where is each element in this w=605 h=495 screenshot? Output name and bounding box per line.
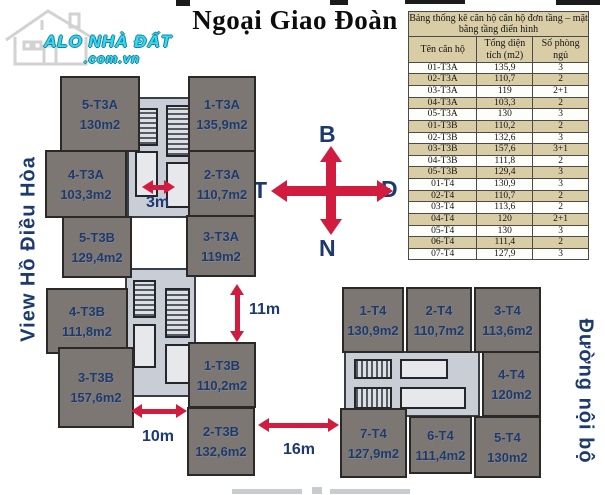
unit-area: 110,2m2	[197, 379, 248, 392]
logo: ALO NHÀ ĐẤT .com.vn	[0, 6, 165, 68]
bottom-cutoff-text-fragment	[330, 489, 410, 494]
table-cell: 119	[477, 86, 533, 98]
table-cell: 04-T3B	[409, 155, 477, 167]
unit-area: 111,8m2	[62, 325, 112, 338]
dimension-arrow-10m	[131, 404, 187, 418]
elevator	[400, 359, 448, 379]
unit-1-T3B: 1-T3B110,2m2	[188, 342, 256, 408]
unit-id: 6-T4	[427, 429, 454, 442]
table-row: 06-T4111,42	[409, 237, 589, 249]
elevator	[165, 344, 190, 384]
floorplan-canvas: Ngoại Giao Đoàn ALO NHÀ ĐẤT .com.vn View…	[0, 0, 605, 495]
table-cell: 03-T3B	[409, 144, 477, 156]
table-cell: 130	[477, 109, 533, 121]
unit-area: 103,3m2	[60, 188, 111, 201]
unit-area: 130m2	[487, 451, 527, 464]
unit-area: 132,6m2	[195, 445, 246, 458]
compass-arrow-south	[320, 219, 342, 235]
unit-5-T4: 5-T4130m2	[474, 416, 541, 478]
table-cell: 3+1	[533, 144, 589, 156]
table-cell: 2	[533, 190, 589, 202]
unit-id: 4-T3B	[69, 305, 105, 318]
table-cell: 3	[533, 109, 589, 121]
table-cell: 01-T3A	[409, 62, 477, 74]
unit-id: 2-T3B	[203, 425, 239, 438]
unit-id: 5-T4	[494, 431, 521, 444]
unit-area: 110,7m2	[197, 188, 248, 201]
unit-area: 119m2	[201, 250, 241, 263]
table-row: 05-T41303	[409, 225, 589, 237]
top-cutoff-text-fragment	[405, 0, 465, 4]
logo-domain: .com.vn	[84, 51, 140, 66]
table-row: 02-T4110,72	[409, 190, 589, 202]
stairwell	[354, 359, 392, 379]
stairwell	[354, 387, 392, 409]
table-cell: 3	[533, 167, 589, 179]
table-cell: 132,6	[477, 132, 533, 144]
unit-area: 113,6m2	[482, 324, 533, 337]
right-side-label: Đường nội bộ	[574, 318, 597, 463]
compass-arrow-west	[271, 180, 287, 202]
unit-7-T4: 7-T4127,9m2	[340, 408, 407, 478]
col-header-unit: Tên căn hộ	[409, 37, 477, 62]
table-cell: 05-T3B	[409, 167, 477, 179]
table-row: 05-T3A1303	[409, 109, 589, 121]
table-cell: 2	[533, 120, 589, 132]
table-row: 04-T41202+1	[409, 213, 589, 225]
unit-1-T3A: 1-T3A135,9m2	[188, 76, 256, 152]
table-row: 02-T3B132,63	[409, 132, 589, 144]
dimension-label-3m: 3m	[146, 194, 169, 212]
table-cell: 111,4	[477, 237, 533, 249]
dimension-label-11m: 11m	[249, 301, 280, 319]
table-cell: 04-T3A	[409, 97, 477, 109]
table-cell: 110,7	[477, 190, 533, 202]
elevator	[400, 387, 466, 409]
unit-id: 7-T4	[360, 427, 387, 440]
table-cell: 06-T4	[409, 237, 477, 249]
unit-3-T4: 3-T4113,6m2	[474, 287, 541, 353]
table-cell: 103,3	[477, 97, 533, 109]
unit-id: 3-T3A	[203, 230, 239, 243]
dimension-label-16m: 16m	[283, 441, 315, 459]
unit-id: 3-T3B	[78, 371, 114, 384]
unit-id: 3-T4	[494, 304, 521, 317]
table-title: Bảng thống kê căn hộ căn hộ đơn tầng – m…	[409, 12, 589, 37]
unit-id: 5-T3B	[79, 231, 115, 244]
table-row: 05-T3B129,43	[409, 167, 589, 179]
bottom-cutoff-text-fragment	[312, 487, 322, 494]
logo-text: ALO NHÀ ĐẤT	[44, 32, 172, 52]
table-cell: 05-T3A	[409, 109, 477, 121]
unit-id: 1-T3B	[204, 359, 240, 372]
unit-area: 157,6m2	[70, 391, 121, 404]
table-cell: 3	[533, 225, 589, 237]
unit-id: 4-T3A	[68, 168, 104, 181]
table-cell: 127,9	[477, 248, 533, 260]
table-row: 01-T3A135,93	[409, 62, 589, 74]
unit-5-T3B: 5-T3B129,4m2	[62, 216, 132, 278]
unit-id: 2-T4	[426, 304, 453, 317]
unit-5-T3A: 5-T3A130m2	[60, 76, 140, 152]
col-header-bedrooms: Số phòng ngủ	[533, 37, 589, 62]
compass-south-label: N	[319, 235, 336, 262]
table-row: 03-T3A1192+1	[409, 86, 589, 98]
table-cell: 3	[533, 248, 589, 260]
table-cell: 157,6	[477, 144, 533, 156]
left-side-label: View Hồ Điều Hòa	[18, 156, 41, 342]
table-cell: 2+1	[533, 213, 589, 225]
dimension-arrow-16m	[258, 418, 339, 432]
dimension-label-10m: 10m	[142, 428, 174, 446]
unit-area: 129,4m2	[71, 251, 122, 264]
table-cell: 111,8	[477, 155, 533, 167]
table-cell: 130,9	[477, 179, 533, 191]
table-cell: 2+1	[533, 86, 589, 98]
table-cell: 120	[477, 213, 533, 225]
table-cell: 113,6	[477, 202, 533, 214]
elevator	[133, 324, 156, 368]
table-cell: 02-T3A	[409, 74, 477, 86]
unit-area: 127,9m2	[348, 447, 399, 460]
table-body: 01-T3A135,9302-T3A110,7203-T3A1192+104-T…	[409, 62, 589, 260]
unit-area: 130,9m2	[347, 324, 398, 337]
unit-id: 4-T4	[498, 368, 525, 381]
table-cell: 02-T4	[409, 190, 477, 202]
table-cell: 01-T3B	[409, 120, 477, 132]
dimension-arrow-11m	[230, 284, 244, 342]
table-cell: 130	[477, 225, 533, 237]
table-cell: 3	[533, 179, 589, 191]
unit-id: 2-T3A	[204, 168, 240, 181]
unit-area: 130m2	[80, 118, 120, 131]
table-row: 04-T3A103,32	[409, 97, 589, 109]
unit-4-T3A: 4-T3A103,3m2	[45, 150, 127, 218]
table-row: 01-T3B110,22	[409, 120, 589, 132]
unit-area: 110,7m2	[414, 324, 465, 337]
unit-3-T3A: 3-T3A119m2	[186, 215, 256, 277]
compass-north-label: B	[319, 121, 336, 148]
table-row: 03-T4113,62	[409, 202, 589, 214]
bottom-cutoff-text-fragment	[232, 489, 302, 494]
unit-area: 120m2	[491, 388, 531, 401]
unit-id: 1-T4	[360, 304, 387, 317]
unit-2-T3B: 2-T3B132,6m2	[187, 407, 255, 476]
table-cell: 3	[533, 62, 589, 74]
table-cell: 03-T4	[409, 202, 477, 214]
unit-4-T3B: 4-T3B111,8m2	[46, 288, 128, 354]
compass-arrow-north	[320, 146, 342, 162]
apartment-stats-table: Bảng thống kê căn hộ căn hộ đơn tầng – m…	[408, 11, 589, 260]
table-row: 02-T3A110,72	[409, 74, 589, 86]
unit-3-T3B: 3-T3B157,6m2	[58, 347, 134, 428]
unit-4-T4: 4-T4120m2	[482, 351, 541, 417]
stairwell	[133, 280, 156, 318]
table-cell: 2	[533, 237, 589, 249]
unit-6-T4: 6-T4111,4m2	[409, 416, 472, 474]
table-cell: 03-T3A	[409, 86, 477, 98]
table-cell: 110,7	[477, 74, 533, 86]
table-row: 03-T3B157,63+1	[409, 144, 589, 156]
table-cell: 3	[533, 132, 589, 144]
unit-2-T3A: 2-T3A110,7m2	[188, 150, 256, 218]
unit-1-T4: 1-T4130,9m2	[342, 287, 404, 353]
table-cell: 2	[533, 155, 589, 167]
table-cell: 135,9	[477, 62, 533, 74]
top-cutoff-text-fragment	[556, 0, 600, 5]
dimension-arrow-3m	[142, 180, 175, 194]
table-cell: 2	[533, 74, 589, 86]
unit-2-T4: 2-T4110,7m2	[406, 287, 472, 353]
table-row: 04-T3B111,82	[409, 155, 589, 167]
compass-arrow-east	[377, 180, 393, 202]
core-T3B	[125, 268, 196, 397]
table-cell: 04-T4	[409, 213, 477, 225]
unit-id: 5-T3A	[82, 98, 118, 111]
table-row: 07-T4127,93	[409, 248, 589, 260]
table-cell: 07-T4	[409, 248, 477, 260]
unit-id: 1-T3A	[204, 98, 240, 111]
table-cell: 02-T3B	[409, 132, 477, 144]
table-cell: 129,4	[477, 167, 533, 179]
table-cell: 2	[533, 202, 589, 214]
table-cell: 05-T4	[409, 225, 477, 237]
compass-horizontal-bar	[286, 186, 378, 196]
table-row: 01-T4130,93	[409, 179, 589, 191]
compass-icon: B T Đ N	[255, 115, 405, 260]
table-cell: 01-T4	[409, 179, 477, 191]
unit-area: 111,4m2	[416, 449, 466, 462]
table-cell: 110,2	[477, 120, 533, 132]
unit-area: 135,9m2	[196, 118, 247, 131]
stairwell	[165, 288, 190, 338]
col-header-area: Tổng diện tích (m2)	[477, 37, 533, 62]
table-cell: 2	[533, 97, 589, 109]
